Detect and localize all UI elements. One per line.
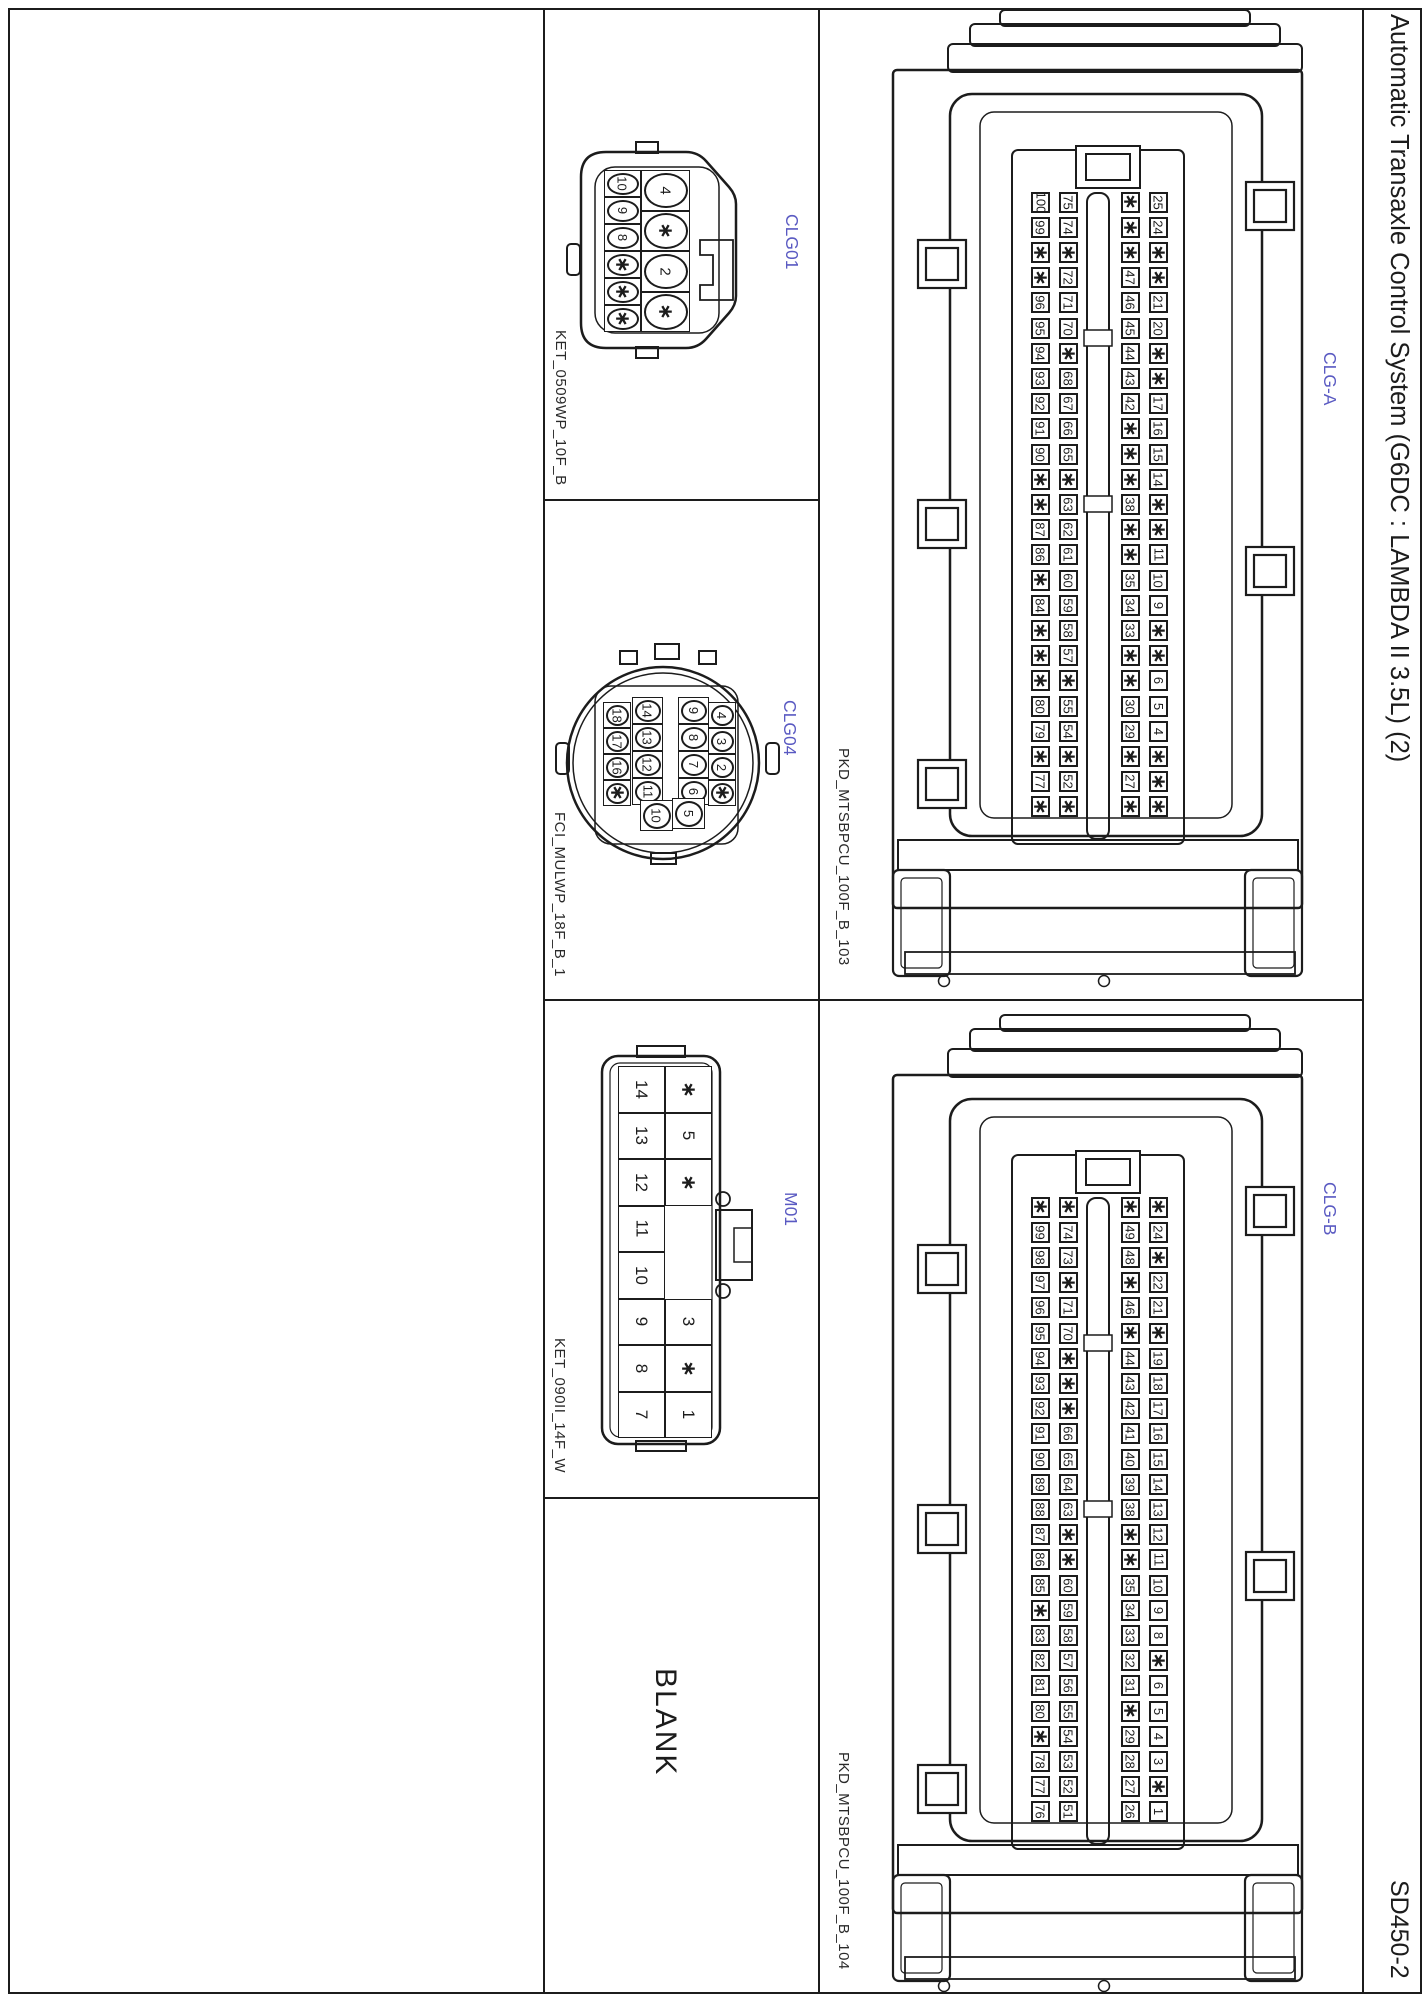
pin-cell: ∗ [1121,645,1140,666]
pin-cell: 16 [1149,418,1168,439]
pin-cell: 38 [1121,494,1140,515]
pin-cell: ∗ [1121,544,1140,565]
blank-cell-label: BLANK [649,1668,682,1776]
pin-cell: ∗ [1059,670,1078,691]
pin-cell: 91 [1031,1423,1050,1444]
pin-cell: 14 [1149,1474,1168,1495]
pin-cell: ∗ [1149,1650,1168,1671]
pin-cell: ∗ [1121,1272,1140,1293]
pin-cell: 6 [1149,670,1168,691]
pin-cell: 15 [1149,1449,1168,1470]
pin-cell: 42 [1121,393,1140,414]
pin-cell: 9 [618,1299,665,1346]
pin-cell: 3 [1149,1751,1168,1772]
pin-cell: 17 [1149,1398,1168,1419]
pin-cell: ∗ [1121,1549,1140,1570]
pin-cell: 34 [1121,595,1140,616]
pin-cell: 20 [1149,318,1168,339]
pin-cell: ∗ [1121,670,1140,691]
pin-cell: ∗ [1149,1247,1168,1268]
pin-cell: 9 [678,697,709,724]
pin-cell: 9 [1149,595,1168,616]
pin-cell: ∗ [1149,1323,1168,1344]
pin-cell: 8 [604,224,641,251]
pin-cell: ∗ [1121,519,1140,540]
pin-cell: 100 [1031,192,1050,213]
pin-cell: 25 [1149,192,1168,213]
pin-cell: 1 [665,1392,712,1439]
pin-cell: 77 [1031,771,1050,792]
part-number-clg01: KET_0509WP_10F_B [552,330,569,486]
pin-cell: 90 [1031,1449,1050,1470]
pin-cell: 29 [1121,1726,1140,1747]
pin-cell: 35 [1121,570,1140,591]
pin-cell: 53 [1059,1751,1078,1772]
pin-cell: 92 [1031,393,1050,414]
pin-cell: 14 [632,697,663,724]
pin-cell: 41 [1121,1423,1140,1444]
pin-cell: 80 [1031,696,1050,717]
pin-cell: ∗ [1149,368,1168,389]
pin-cell: ∗ [1031,242,1050,263]
pin-cell: 81 [1031,1675,1050,1696]
pin-cell: 65 [1059,444,1078,465]
pin-cell: 70 [1059,1323,1078,1344]
pin-cell: ∗ [1059,1549,1078,1570]
pin-cell: ∗ [1059,1398,1078,1419]
pin-cell: 9 [604,197,641,224]
pin-cell: 54 [1059,721,1078,742]
pin-cell: ∗ [1059,796,1078,817]
pin-cell: ∗ [1149,494,1168,515]
pin-cell: ∗ [1149,746,1168,767]
pin-cell: 89 [1031,1474,1050,1495]
pin-cell: 94 [1031,343,1050,364]
pin-cell: 56 [1059,1675,1078,1696]
pin-cell: 22 [1149,1272,1168,1293]
pin-cell: 1 [1149,1801,1168,1822]
pin-cell: 61 [1059,544,1078,565]
pin-cell: 90 [1031,444,1050,465]
pin-cell: 19 [1149,1348,1168,1369]
pin-cell: 99 [1031,217,1050,238]
pin-cell: 11 [1149,1549,1168,1570]
pin-cell: 10 [1149,570,1168,591]
pin-cell: 60 [1059,1575,1078,1596]
pin-cell: 14 [1149,469,1168,490]
pin-cell: 7 [618,1392,665,1439]
pin-cell: 67 [1059,393,1078,414]
pin-cell: 43 [1121,368,1140,389]
pin-cell: 11 [1149,544,1168,565]
pin-cell: 46 [1121,292,1140,313]
pin-cell: 27 [1121,771,1140,792]
pin-cell: 5 [665,1113,712,1160]
pin-cell: ∗ [1149,242,1168,263]
pin-grid-layer: 10075∗259974∗24∗∗∗∗∗7247∗967146219570452… [0,0,1428,2000]
pin-cell: 71 [1059,1297,1078,1318]
pin-cell: 34 [1121,1600,1140,1621]
pin-cell: 73 [1059,1247,1078,1268]
pin-cell: 93 [1031,368,1050,389]
pin-cell: 13 [1149,1499,1168,1520]
pin-cell: ∗ [1059,1524,1078,1545]
pin-cell: ∗ [1149,1197,1168,1218]
pin-cell: 40 [1121,1449,1140,1470]
pin-cell: ∗ [1059,1373,1078,1394]
pin-cell: 87 [1031,1524,1050,1545]
pin-cell: 54 [1059,1726,1078,1747]
pin-cell: ∗ [1031,494,1050,515]
pin-cell: ∗ [1149,620,1168,641]
pin-cell: 74 [1059,217,1078,238]
pin-cell: ∗ [604,278,641,305]
pin-cell: 48 [1121,1247,1140,1268]
pin-cell: 93 [1031,1373,1050,1394]
pin-cell: ∗ [1121,1323,1140,1344]
pin-cell: 4 [641,170,690,211]
pin-cell: 58 [1059,620,1078,641]
connector-label-clg-a: CLG-A [1320,352,1339,405]
pin-cell: ∗ [1059,1272,1078,1293]
pin-cell: 8 [678,724,709,751]
pin-cell: 80 [1031,1701,1050,1722]
pin-cell: 78 [1031,1751,1050,1772]
pin-cell: 2 [641,251,690,292]
pin-cell: ∗ [1059,1348,1078,1369]
pin-cell: 96 [1031,1297,1050,1318]
pin-cell: ∗ [665,1066,712,1113]
pin-cell: 16 [1149,1423,1168,1444]
pin-cell: ∗ [1121,1524,1140,1545]
pin-cell: 4 [1149,1726,1168,1747]
pin-cell: 52 [1059,771,1078,792]
pin-cell: 33 [1121,1625,1140,1646]
pin-cell: 68 [1059,368,1078,389]
pin-cell: 44 [1121,1348,1140,1369]
pin-cell: 59 [1059,595,1078,616]
pin-cell: ∗ [1149,1776,1168,1797]
pin-cell: 5 [672,798,705,829]
schematic-page: 10075∗259974∗24∗∗∗∗∗7247∗967146219570452… [0,0,1428,2000]
pin-cell: 10 [640,800,673,831]
pin-cell: ∗ [1121,1701,1140,1722]
pin-cell: ∗ [1059,242,1078,263]
pin-cell: 8 [618,1345,665,1392]
pin-cell: ∗ [1031,570,1050,591]
pin-cell: 84 [1031,595,1050,616]
pin-cell: 95 [1031,318,1050,339]
pin-cell: 71 [1059,292,1078,313]
pin-cell: 62 [1059,519,1078,540]
pin-cell: 63 [1059,494,1078,515]
pin-cell: 66 [1059,1423,1078,1444]
pin-cell: 83 [1031,1625,1050,1646]
connector-label-clg-b: CLG-B [1320,1182,1339,1235]
pin-cell: 72 [1059,267,1078,288]
pin-cell: ∗ [1121,1197,1140,1218]
pin-cell: 96 [1031,292,1050,313]
part-number-clg04: FCI_MULWP_18F_B_1 [551,812,568,977]
pin-cell: ∗ [1031,469,1050,490]
pin-cell: 63 [1059,1499,1078,1520]
pin-cell: 64 [1059,1474,1078,1495]
pin-cell: 39 [1121,1474,1140,1495]
pin-cell: 15 [1149,444,1168,465]
pin-cell: 44 [1121,343,1140,364]
pin-cell: 12 [618,1159,665,1206]
pin-cell: 47 [1121,267,1140,288]
part-number-clg-b: PKD_MTSBPCU_100F_B_104 [835,1752,852,1970]
pin-cell: 77 [1031,1776,1050,1797]
pin-cell: 9 [1149,1600,1168,1621]
pin-cell: ∗ [604,305,641,332]
pin-cell: 74 [1059,1222,1078,1243]
pin-cell: 85 [1031,1575,1050,1596]
pin-cell: 70 [1059,318,1078,339]
pin-cell: ∗ [1121,217,1140,238]
pin-cell: 12 [1149,1524,1168,1545]
pin-cell: 16 [603,754,631,780]
pin-cell: 3 [665,1299,712,1346]
pin-cell: 5 [1149,696,1168,717]
pin-cell: 10 [1149,1575,1168,1596]
pin-cell: 91 [1031,418,1050,439]
pin-cell: 55 [1059,1701,1078,1722]
pin-cell: 51 [1059,1801,1078,1822]
pin-cell: 97 [1031,1272,1050,1293]
pin-cell: 46 [1121,1297,1140,1318]
pin-cell: 95 [1031,1323,1050,1344]
pin-cell: 58 [1059,1625,1078,1646]
pin-cell: 29 [1121,721,1140,742]
pin-cell: ∗ [665,1345,712,1392]
pin-cell: ∗ [1059,343,1078,364]
pin-cell: 18 [1149,1373,1168,1394]
pin-cell: 66 [1059,418,1078,439]
pin-cell: ∗ [665,1159,712,1206]
pin-cell: 60 [1059,570,1078,591]
pin-cell: ∗ [1149,771,1168,792]
pin-cell: 38 [1121,1499,1140,1520]
pin-cell: 79 [1031,721,1050,742]
pin-cell: ∗ [1031,1726,1050,1747]
pin-cell: 88 [1031,1499,1050,1520]
pin-cell: ∗ [708,780,736,806]
pin-cell: 57 [1059,1650,1078,1671]
pin-cell: 65 [1059,1449,1078,1470]
pin-cell: ∗ [603,780,631,806]
pin-cell: 76 [1031,1801,1050,1822]
pin-cell: 75 [1059,192,1078,213]
pin-cell: ∗ [1031,267,1050,288]
pin-cell: 5 [1149,1701,1168,1722]
pin-cell: ∗ [1121,444,1140,465]
pin-cell: ∗ [1121,192,1140,213]
pin-cell: 32 [1121,1650,1140,1671]
pin-cell: ∗ [1031,670,1050,691]
pin-cell: 31 [1121,1675,1140,1696]
pin-cell: 35 [1121,1575,1140,1596]
connector-label-clg01: CLG01 [782,214,801,269]
pin-cell: 27 [1121,1776,1140,1797]
pin-cell: ∗ [1121,796,1140,817]
pin-cell: 57 [1059,645,1078,666]
connector-label-clg04: CLG04 [780,700,799,755]
doc-code: SD450-2 [1385,1880,1413,1979]
pin-cell: ∗ [641,211,690,252]
pin-cell: 82 [1031,1650,1050,1671]
pin-cell: 87 [1031,519,1050,540]
pin-cell: 17 [1149,393,1168,414]
pin-cell: 24 [1149,217,1168,238]
pin-cell: ∗ [1121,242,1140,263]
pin-cell: 92 [1031,1398,1050,1419]
pin-cell: 55 [1059,696,1078,717]
pin-cell: 10 [604,170,641,197]
pin-cell: 4 [1149,721,1168,742]
pin-cell: ∗ [1031,645,1050,666]
pin-cell: ∗ [1059,469,1078,490]
pin-cell: 18 [603,702,631,728]
pin-cell: 94 [1031,1348,1050,1369]
pin-cell: 6 [1149,1675,1168,1696]
pin-cell: ∗ [1031,746,1050,767]
pin-cell: ∗ [1149,267,1168,288]
pin-cell: ∗ [1149,343,1168,364]
pin-cell: 3 [708,728,736,754]
pin-cell: ∗ [641,292,690,333]
pin-cell: 13 [618,1113,665,1160]
pin-cell: 98 [1031,1247,1050,1268]
pin-cell: 28 [1121,1751,1140,1772]
pin-cell: 24 [1149,1222,1168,1243]
pin-cell: ∗ [1031,1600,1050,1621]
pin-cell: ∗ [1149,796,1168,817]
pin-cell: 12 [632,751,663,778]
pin-cell: 14 [618,1066,665,1113]
pin-cell: ∗ [1121,418,1140,439]
pin-cell: 59 [1059,1600,1078,1621]
pin-cell: 99 [1031,1222,1050,1243]
pin-cell: 45 [1121,318,1140,339]
pin-cell: 21 [1149,1297,1168,1318]
pin-cell: 33 [1121,620,1140,641]
pin-cell: 17 [603,728,631,754]
pin-cell: ∗ [1149,519,1168,540]
pin-cell: 42 [1121,1398,1140,1419]
pin-cell: 30 [1121,696,1140,717]
connector-label-m01: M01 [781,1192,800,1226]
pin-cell: ∗ [1031,620,1050,641]
pin-cell: ∗ [1121,746,1140,767]
pin-cell: ∗ [1121,469,1140,490]
pin-cell: 49 [1121,1222,1140,1243]
pin-cell: 2 [708,754,736,780]
pin-cell: 13 [632,724,663,751]
pin-cell: 86 [1031,1549,1050,1570]
pin-cell: 8 [1149,1625,1168,1646]
pin-cell: ∗ [604,251,641,278]
pin-cell: 43 [1121,1373,1140,1394]
pin-cell: ∗ [1059,1197,1078,1218]
page-title: Automatic Transaxle Control System (G6DC… [1385,14,1413,762]
pin-cell: 11 [618,1206,665,1253]
pin-cell: ∗ [1031,796,1050,817]
pin-cell: 86 [1031,544,1050,565]
part-number-m01: KET_090II_14F_W [551,1338,568,1473]
pin-cell: 52 [1059,1776,1078,1797]
pin-cell: ∗ [1149,645,1168,666]
pin-cell: 7 [678,751,709,778]
pin-cell: ∗ [1031,1197,1050,1218]
part-number-clg-a: PKD_MTSBPCU_100F_B_103 [835,748,852,966]
pin-cell: 4 [708,702,736,728]
pin-cell: 10 [618,1252,665,1299]
pin-cell: ∗ [1059,746,1078,767]
pin-cell: 26 [1121,1801,1140,1822]
pin-cell: 21 [1149,292,1168,313]
